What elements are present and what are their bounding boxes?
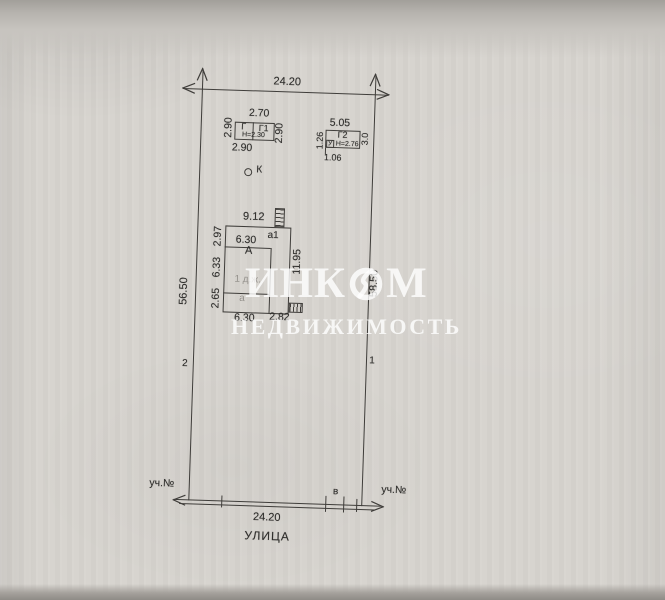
house-dim-left-upper: 2.97 <box>212 226 223 247</box>
right-arrow-icon <box>376 88 390 100</box>
watermark-brand-left: ИНК <box>245 266 346 302</box>
left-arrow-icon <box>172 494 186 506</box>
boundary-point-1-label: 1 <box>369 356 375 366</box>
top-dimension-line <box>183 88 389 96</box>
street-tick-line <box>356 499 358 512</box>
well-circle <box>244 168 252 176</box>
right-arrow-icon <box>370 500 384 512</box>
plot-top-width-label: 24.20 <box>273 76 301 88</box>
up-arrow-icon <box>196 67 208 81</box>
shed-g2-dim-top: 5.05 <box>329 118 350 129</box>
shed-g-dim-top: 2.70 <box>249 108 270 119</box>
shed-g2-dim-right: 3.0 <box>361 133 370 146</box>
shed-g2-height-label: Н=2.76 <box>336 141 359 149</box>
plot-left-length-label: 56.50 <box>178 277 190 305</box>
shed-g2-name-label: Г2 <box>337 131 347 140</box>
watermark-subtitle: НЕДВИЖИМОСТЬ <box>231 314 462 340</box>
lightning-ring-logo-icon <box>348 266 384 302</box>
shed-g-dim-bottom: 2.90 <box>232 142 253 153</box>
left-boundary-line <box>188 69 204 501</box>
house-main-label: А <box>245 246 253 257</box>
street-tick-line <box>221 495 223 507</box>
shed-g2-dim-bottom: 1.06 <box>324 153 342 163</box>
left-arrow-icon <box>182 82 196 94</box>
well-label: К <box>256 165 262 175</box>
shed-g-height-label: Н=2.30 <box>242 131 265 139</box>
house-annex-top-label: а1 <box>267 231 278 241</box>
shed-g-cell-left-label: Г <box>241 122 246 131</box>
neighbor-right-label: уч.№ <box>381 484 406 495</box>
gate-tick-line <box>325 496 327 512</box>
house-dim-left-lower: 2.65 <box>210 288 221 309</box>
shed-g2-dim-left: 1.26 <box>315 132 325 150</box>
up-arrow-icon <box>369 73 381 87</box>
shed-g-dim-right: 2.90 <box>274 123 285 144</box>
house-chimney-hatch <box>274 208 285 227</box>
shed-g-dim-left: 2.90 <box>223 117 234 138</box>
gate-tick-line <box>343 496 345 512</box>
site-plan-scan: 24.20 56.50 58.50 2 1 Г Г1 Н=2.30 2.70 2… <box>0 0 665 600</box>
shed-g2-annex-label: У <box>328 140 333 147</box>
watermark-brand: ИНК М <box>245 266 428 302</box>
neighbor-left-label: уч.№ <box>149 478 174 489</box>
street-name-label: УЛИЦА <box>244 529 290 543</box>
boundary-point-2-label: 2 <box>182 359 188 369</box>
house-dim-top: 9.12 <box>243 212 265 224</box>
watermark-brand-right: М <box>386 266 428 302</box>
house-dim-left-middle: 6.33 <box>211 257 222 278</box>
gate-label: в <box>333 487 339 497</box>
street-width-label: 24.20 <box>253 512 281 524</box>
